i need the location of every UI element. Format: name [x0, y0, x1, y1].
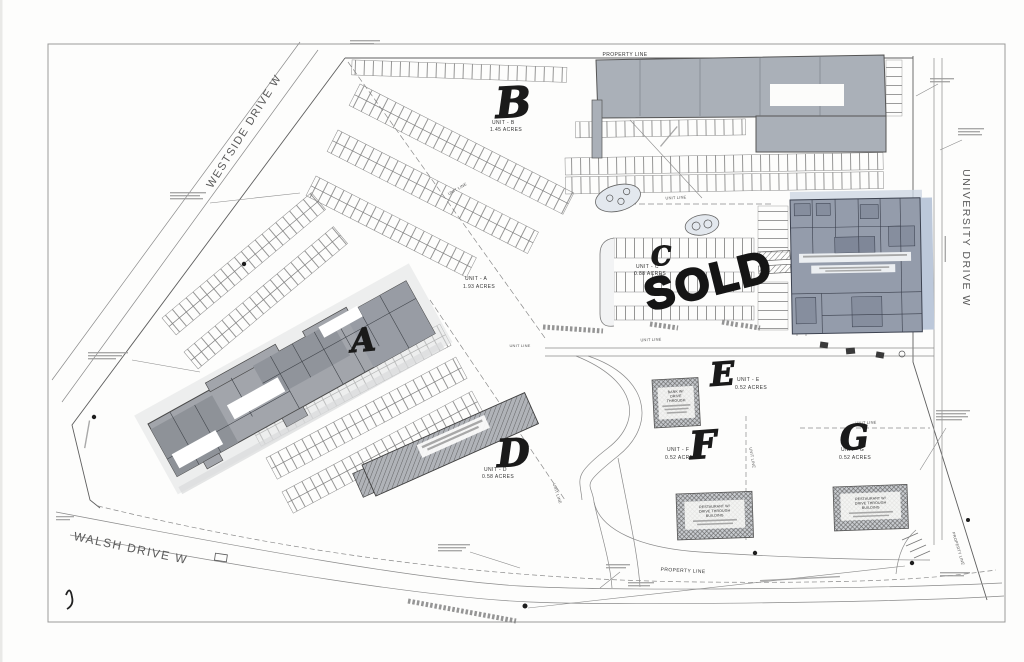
scanned-site-plan: BANK W/ DRIVE THROUGH RESTAURANT W/ DRIV… [0, 0, 1024, 662]
restaurant1-label-3: BUILDING [706, 513, 724, 518]
restaurant2-label-3: BUILDING [862, 505, 880, 510]
unit-f-name: UNIT - F [667, 447, 689, 453]
blank-sign [770, 84, 844, 106]
handwritten-letter-e: E [708, 354, 737, 394]
unit-line-label: UNIT LINE [509, 343, 530, 348]
property-line-label-top: PROPERTY LINE [602, 52, 647, 58]
building-retail-center [790, 190, 934, 334]
restaurant-building-1: RESTAURANT W/ DRIVE THROUGH BUILDING [676, 491, 754, 540]
unit-e-name: UNIT - E [737, 377, 760, 383]
restaurant-building-2: RESTAURANT W/ DRIVE THROUGH BUILDING [833, 484, 908, 531]
street-label-university: UNIVERSITY DRIVE W [960, 169, 972, 307]
unit-line-label: UNIT LINE [640, 337, 661, 343]
site-plan-drawing: BANK W/ DRIVE THROUGH RESTAURANT W/ DRIV… [0, 0, 1024, 662]
unit-a-acres: 1.93 ACRES [463, 284, 495, 290]
parking-ladder-ne [886, 60, 902, 116]
unit-a-name: UNIT - A [465, 276, 488, 282]
handwritten-letter-b: B [493, 77, 532, 128]
bank-building: BANK W/ DRIVE THROUGH [652, 378, 700, 428]
unit-e-acres: 0.52 ACRES [735, 385, 767, 391]
handwritten-letter-d: D [495, 429, 531, 476]
handwritten-letter-g: G [839, 417, 870, 458]
unit-b-acres: 1.45 ACRES [490, 127, 522, 133]
scan-edge [0, 0, 3, 662]
